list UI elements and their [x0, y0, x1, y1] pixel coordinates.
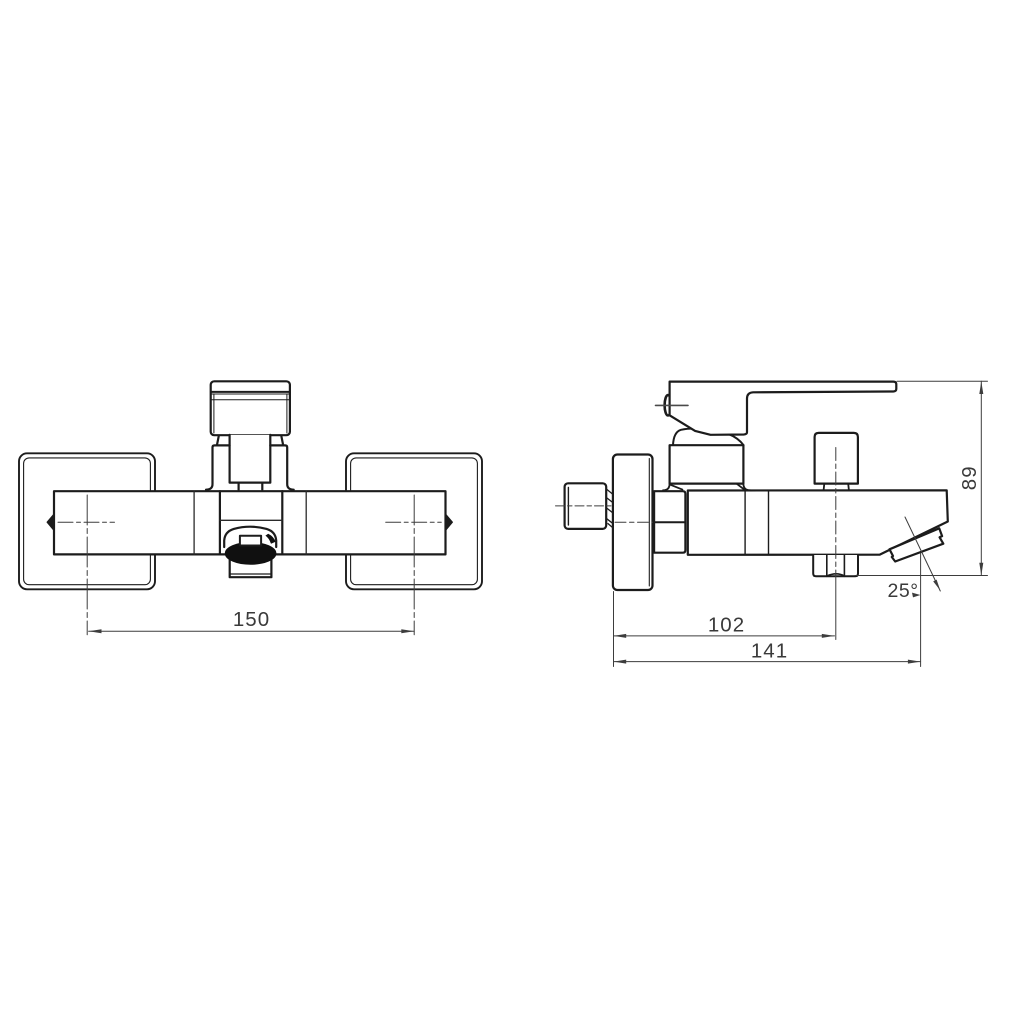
svg-text:150: 150 [233, 608, 270, 631]
svg-text:141: 141 [751, 640, 788, 663]
svg-text:102: 102 [708, 614, 745, 637]
svg-text:89: 89 [958, 465, 981, 490]
svg-text:25°: 25° [888, 580, 919, 602]
